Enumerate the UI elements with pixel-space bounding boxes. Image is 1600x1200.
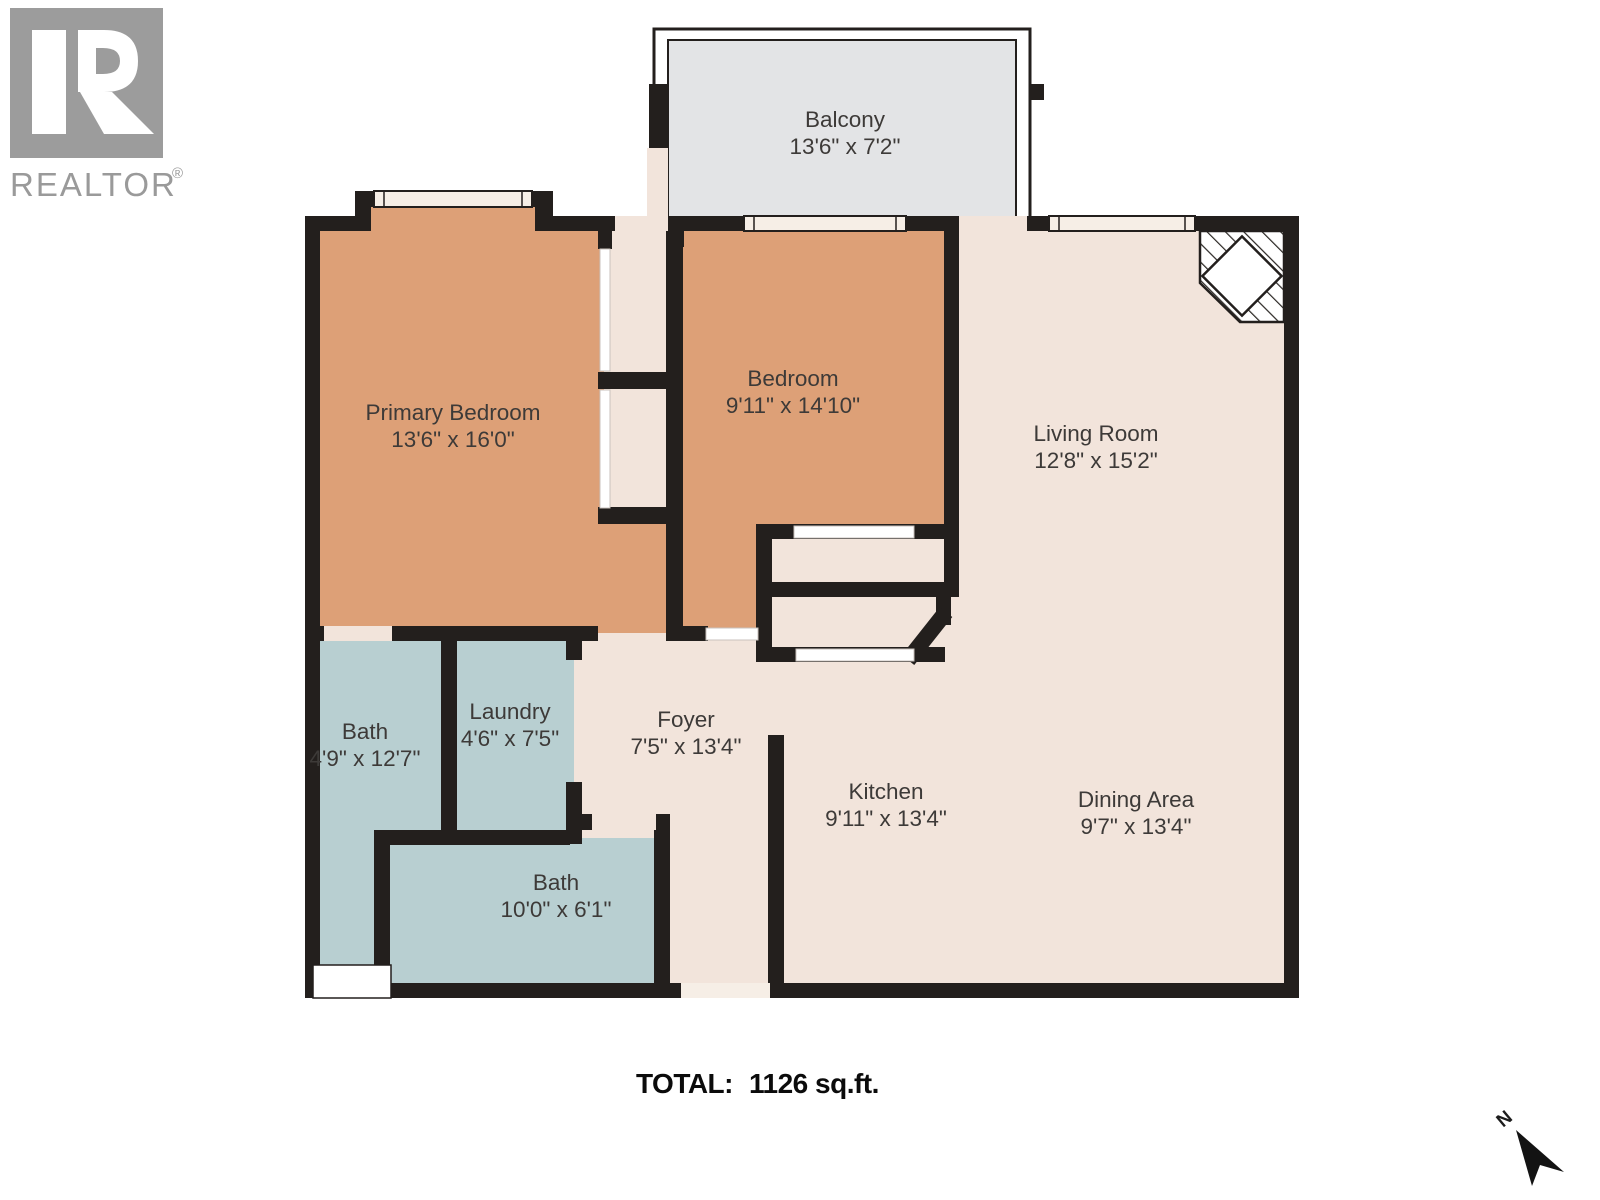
bedroom-balcony-window xyxy=(744,216,906,231)
kitchen-dims: 9'11" x 13'4" xyxy=(825,806,947,831)
north-label: N xyxy=(1493,1107,1517,1132)
bedroom-door-line xyxy=(706,628,758,640)
balcony-wall-left xyxy=(649,84,668,148)
living-room-window xyxy=(1049,216,1195,231)
balcony-dims: 13'6" x 7'2" xyxy=(790,134,901,159)
primary-bedroom-window xyxy=(374,191,532,207)
kitchen-label: Kitchen xyxy=(848,779,923,804)
wall-top-b xyxy=(535,216,617,231)
floorplan-page: REALTOR ® xyxy=(0,0,1600,1200)
living-balcony-door-gap xyxy=(959,216,1027,231)
realtor-wordmark: REALTOR xyxy=(10,166,177,203)
wall-mainbath-right xyxy=(654,814,670,983)
closet1-door-line xyxy=(600,249,610,371)
wall-bedroom-right xyxy=(944,216,959,597)
total-value: 1126 sq.ft. xyxy=(749,1068,879,1099)
floorplan-canvas: REALTOR ® xyxy=(0,0,1600,1200)
foyer-label: Foyer xyxy=(657,707,715,732)
bedroom-dims: 9'11" x 14'10" xyxy=(726,393,860,418)
balcony-door-gap xyxy=(615,216,668,231)
balcony-wall-right xyxy=(1030,84,1044,100)
foyer-dims: 7'5" x 13'4" xyxy=(631,734,742,759)
bath-window xyxy=(313,965,391,998)
bedroom-label: Bedroom xyxy=(747,366,838,391)
total-area: TOTAL: 1126 sq.ft. xyxy=(636,1068,879,1099)
primary-bedroom-dims: 13'6" x 16'0" xyxy=(391,427,514,452)
main-bath-label: Bath xyxy=(533,870,579,895)
dining-area-label: Dining Area xyxy=(1078,787,1195,812)
ensuite-bath-label: Bath xyxy=(342,719,388,744)
wall-hall-closet-divider xyxy=(756,582,959,597)
hall-closet-door-line xyxy=(796,649,914,661)
laundry-label: Laundry xyxy=(469,699,551,724)
total-label: TOTAL: xyxy=(636,1068,733,1099)
wall-closet-bottom xyxy=(598,507,668,524)
main-bath-dims: 10'0" x 6'1" xyxy=(501,897,612,922)
wall-laundry-right-top xyxy=(566,626,582,660)
wall-mainbath-top xyxy=(374,830,570,845)
living-room-dims: 12'8" x 15'2" xyxy=(1034,448,1157,473)
wall-right xyxy=(1284,216,1299,998)
mainbath-door-gap xyxy=(592,814,656,830)
realtor-logo: REALTOR ® xyxy=(10,8,183,203)
ensuite-door-gap xyxy=(324,626,392,641)
wall-foyer-kitchen-divider xyxy=(768,735,784,983)
bedroom-closet-door-line xyxy=(794,526,914,538)
ensuite-bath-dims: 4'9" x 12'7" xyxy=(310,746,421,771)
wall-between-bedrooms xyxy=(666,231,683,641)
north-arrow-icon xyxy=(1516,1130,1564,1186)
wall-bottom xyxy=(305,983,1299,998)
entry-door-gap xyxy=(681,983,770,998)
registered-trademark-symbol: ® xyxy=(172,165,183,182)
balcony-threshold-strip xyxy=(647,148,668,223)
wall-bath-laundry-divider xyxy=(441,626,457,838)
wall-left xyxy=(305,216,320,998)
dining-area-dims: 9'7" x 13'4" xyxy=(1081,814,1192,839)
living-room-label: Living Room xyxy=(1033,421,1158,446)
north-arrow: N xyxy=(1493,1107,1564,1186)
wall-closet-divider xyxy=(598,372,668,389)
closet2-door-line xyxy=(600,390,610,508)
wall-mainbath-left xyxy=(374,830,390,983)
balcony-label: Balcony xyxy=(805,107,886,132)
wall-mainbath-step xyxy=(566,814,596,830)
laundry-dims: 4'6" x 7'5" xyxy=(461,726,559,751)
wall-closet-stub-top xyxy=(598,231,612,249)
realtor-logo-r-stem xyxy=(32,30,66,134)
primary-bedroom-label: Primary Bedroom xyxy=(365,400,540,425)
wall-bedroom-entry xyxy=(666,626,708,641)
